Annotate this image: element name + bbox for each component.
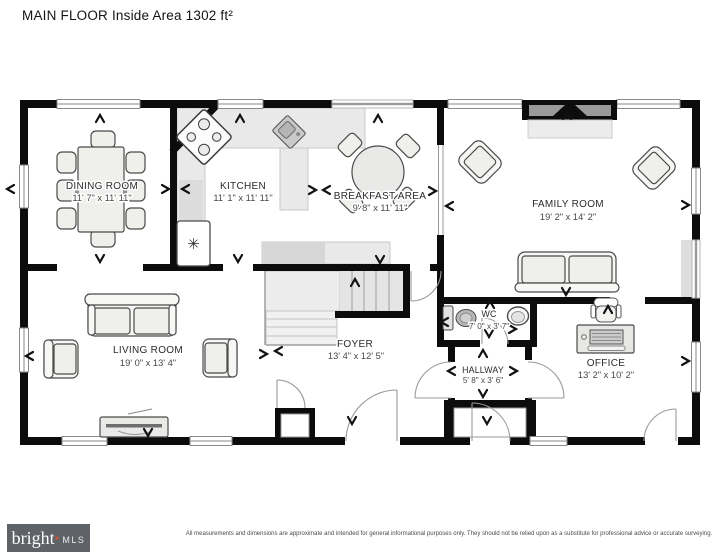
arrow-icon <box>448 367 455 375</box>
dining-chair <box>91 131 115 148</box>
arrow-icon <box>429 187 436 195</box>
window <box>692 342 701 392</box>
arrow-icon <box>374 115 382 122</box>
disclaimer-text: All measurements and dimensions are appr… <box>183 531 715 538</box>
dining-room-dims: 11' 7" x 11' 11" <box>72 193 131 203</box>
arrow-icon <box>260 350 267 358</box>
refrigerator: ✳ <box>177 221 210 266</box>
wc-dims: 7' 0" x 3' 7" <box>469 322 509 331</box>
door-swing <box>415 362 451 398</box>
arrow-icon <box>323 186 330 194</box>
brand-star-icon: ✶ <box>54 534 61 543</box>
arrow-icon <box>7 185 14 193</box>
fireplace <box>522 100 617 138</box>
arrow-icon <box>682 201 689 209</box>
breakfast-area-label: BREAKFAST AREA <box>334 191 426 202</box>
arrow-icon <box>446 202 453 210</box>
armchair <box>456 138 504 186</box>
cased-opening <box>439 145 444 235</box>
entry-closet <box>275 408 315 437</box>
door-swing <box>528 362 564 398</box>
window <box>20 328 29 372</box>
brand-suffix: MLS <box>62 535 85 545</box>
door-swing <box>346 390 397 441</box>
kitchen-label: KITCHEN <box>220 181 266 192</box>
armchair <box>44 340 78 378</box>
refrigerator-snowflake-icon: ✳ <box>187 236 200 253</box>
arrow-icon <box>275 347 282 355</box>
dining-room-label: DINING ROOM <box>66 181 138 192</box>
arrow-icon <box>479 350 487 357</box>
breakfast-area-dims: 9' 8" x 11' 11" <box>353 203 408 213</box>
arrow-icon <box>509 325 516 333</box>
arrow-icon <box>485 330 493 337</box>
breakfast-set <box>337 132 422 215</box>
door-swing <box>411 271 441 301</box>
wc-label: WC <box>481 309 497 319</box>
arrow-icon <box>96 255 104 262</box>
living-sofa <box>85 294 179 336</box>
family-room-dims: 19' 2" x 14' 2" <box>540 212 596 222</box>
hearth <box>528 120 612 138</box>
window <box>692 168 701 214</box>
office-dims: 13' 2" x 10' 2" <box>578 370 634 380</box>
door-swing <box>644 409 676 441</box>
brand-name: bright <box>12 529 55 547</box>
window <box>530 437 567 446</box>
arrow-icon <box>682 357 689 365</box>
window <box>62 437 107 446</box>
hallway-label: HALLWAY <box>462 365 504 375</box>
arrow-icon <box>234 255 242 262</box>
living-room-label: LIVING ROOM <box>113 345 183 356</box>
arrow-icon <box>510 367 517 375</box>
window <box>617 100 680 109</box>
armchair <box>203 339 237 377</box>
brightmls-logo: bright✶MLS <box>7 524 90 552</box>
arrow-icon <box>162 185 169 193</box>
dining-chair <box>57 208 76 229</box>
door-swing <box>277 380 305 408</box>
dining-chair <box>126 208 145 229</box>
office-label: OFFICE <box>587 358 625 369</box>
arrow-icon <box>479 390 487 397</box>
hallway-dims: 5' 8" x 3' 6" <box>463 376 503 385</box>
staircase <box>265 271 403 345</box>
arrow-icon <box>96 115 104 122</box>
keyboard <box>588 346 625 351</box>
living-room-dims: 19' 0" x 13' 4" <box>120 358 176 368</box>
family-sofa <box>515 252 619 292</box>
foyer-dims: 13' 4" x 12' 5" <box>328 351 384 361</box>
wc-sink-icon <box>508 307 529 325</box>
tv-console <box>100 409 168 437</box>
tv-screen <box>106 424 162 428</box>
window <box>190 437 232 446</box>
sliding-door <box>692 240 700 298</box>
window <box>448 100 522 109</box>
kitchen-dims: 11' 1" x 11' 11" <box>213 193 272 203</box>
family-room-label: FAMILY ROOM <box>532 199 604 210</box>
floor-plan: ✳ <box>0 0 720 556</box>
dining-chair <box>57 152 76 173</box>
sliding-door <box>332 100 413 108</box>
arrow-icon <box>309 186 316 194</box>
foyer-label: FOYER <box>337 339 373 350</box>
window <box>57 100 140 109</box>
window <box>20 165 29 208</box>
office-desk <box>577 325 634 353</box>
armchair <box>630 144 678 192</box>
slider-mat <box>681 240 692 298</box>
dining-chair <box>126 152 145 173</box>
window <box>218 100 263 109</box>
